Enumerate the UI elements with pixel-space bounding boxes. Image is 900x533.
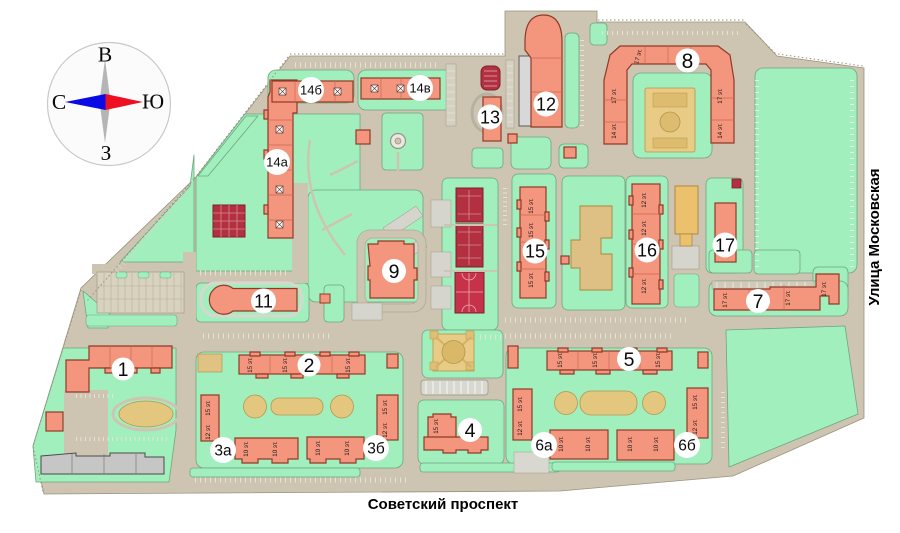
svg-text:10 эт.: 10 эт. [315,440,322,456]
svg-text:17: 17 [715,236,735,256]
svg-text:12 эт.: 12 эт. [205,424,212,440]
svg-text:14в: 14в [409,81,430,96]
svg-text:11: 11 [254,292,273,312]
svg-text:10 эт.: 10 эт. [653,436,660,452]
svg-text:15 эт.: 15 эт. [517,396,524,412]
svg-text:15 эт.: 15 эт. [692,394,699,410]
svg-text:16: 16 [637,241,657,261]
svg-text:Улица Московская: Улица Московская [866,168,883,305]
svg-text:17 эт.: 17 эт. [821,281,828,297]
svg-text:С: С [52,90,66,114]
svg-text:17 эт.: 17 эт. [717,88,724,104]
svg-text:4: 4 [465,420,476,442]
svg-text:15 эт.: 15 эт. [282,357,289,373]
svg-text:15 эт.: 15 эт. [528,198,535,214]
svg-text:17 эт.: 17 эт. [611,88,618,104]
svg-text:12 эт.: 12 эт. [382,422,389,438]
svg-text:10 эт.: 10 эт. [272,441,279,457]
svg-text:15 эт.: 15 эт. [557,352,564,368]
svg-text:17 эт.: 17 эт. [722,292,729,308]
svg-text:6а: 6а [535,438,553,455]
svg-text:12 эт.: 12 эт. [641,192,648,208]
svg-text:14а: 14а [266,155,288,170]
svg-text:15 эт.: 15 эт. [528,222,535,238]
svg-text:10 эт.: 10 эт. [627,436,634,452]
svg-text:З: З [101,141,112,165]
svg-text:15 эт.: 15 эт. [433,418,440,434]
svg-text:1: 1 [118,359,129,381]
svg-text:7: 7 [753,291,764,313]
svg-text:14б: 14б [300,83,322,98]
svg-text:15 эт.: 15 эт. [382,399,389,415]
svg-text:15 эт.: 15 эт. [528,272,535,288]
svg-text:В: В [98,43,112,67]
svg-text:12 эт.: 12 эт. [692,419,699,435]
svg-text:14 эт.: 14 эт. [717,123,724,139]
svg-text:9: 9 [389,261,400,283]
svg-text:3б: 3б [367,441,385,458]
svg-text:12: 12 [536,95,556,115]
svg-text:12 эт.: 12 эт. [517,420,524,436]
svg-text:17 эт.: 17 эт. [785,290,792,306]
svg-text:2: 2 [304,355,315,377]
svg-text:10 эт.: 10 эт. [344,440,351,456]
svg-text:Советский проспект: Советский проспект [368,496,519,513]
svg-text:8: 8 [682,50,694,73]
svg-text:13: 13 [480,108,500,128]
svg-text:Ю: Ю [142,90,164,114]
svg-text:12 эт.: 12 эт. [641,220,648,236]
svg-text:14 эт.: 14 эт. [611,123,618,139]
svg-text:15: 15 [525,242,545,262]
svg-text:10 эт.: 10 эт. [243,441,250,457]
svg-text:12 эт.: 12 эт. [641,278,648,294]
svg-text:6б: 6б [678,438,696,455]
svg-text:15 эт.: 15 эт. [247,357,254,373]
svg-text:10 эт.: 10 эт. [558,436,565,452]
svg-text:5: 5 [624,349,635,371]
svg-text:15 эт.: 15 эт. [205,400,212,416]
svg-text:15 эт.: 15 эт. [592,352,599,368]
svg-text:15 эт.: 15 эт. [345,357,352,373]
svg-text:3а: 3а [214,443,232,460]
svg-text:10 эт.: 10 эт. [585,436,592,452]
svg-text:15 эт.: 15 эт. [655,352,662,368]
